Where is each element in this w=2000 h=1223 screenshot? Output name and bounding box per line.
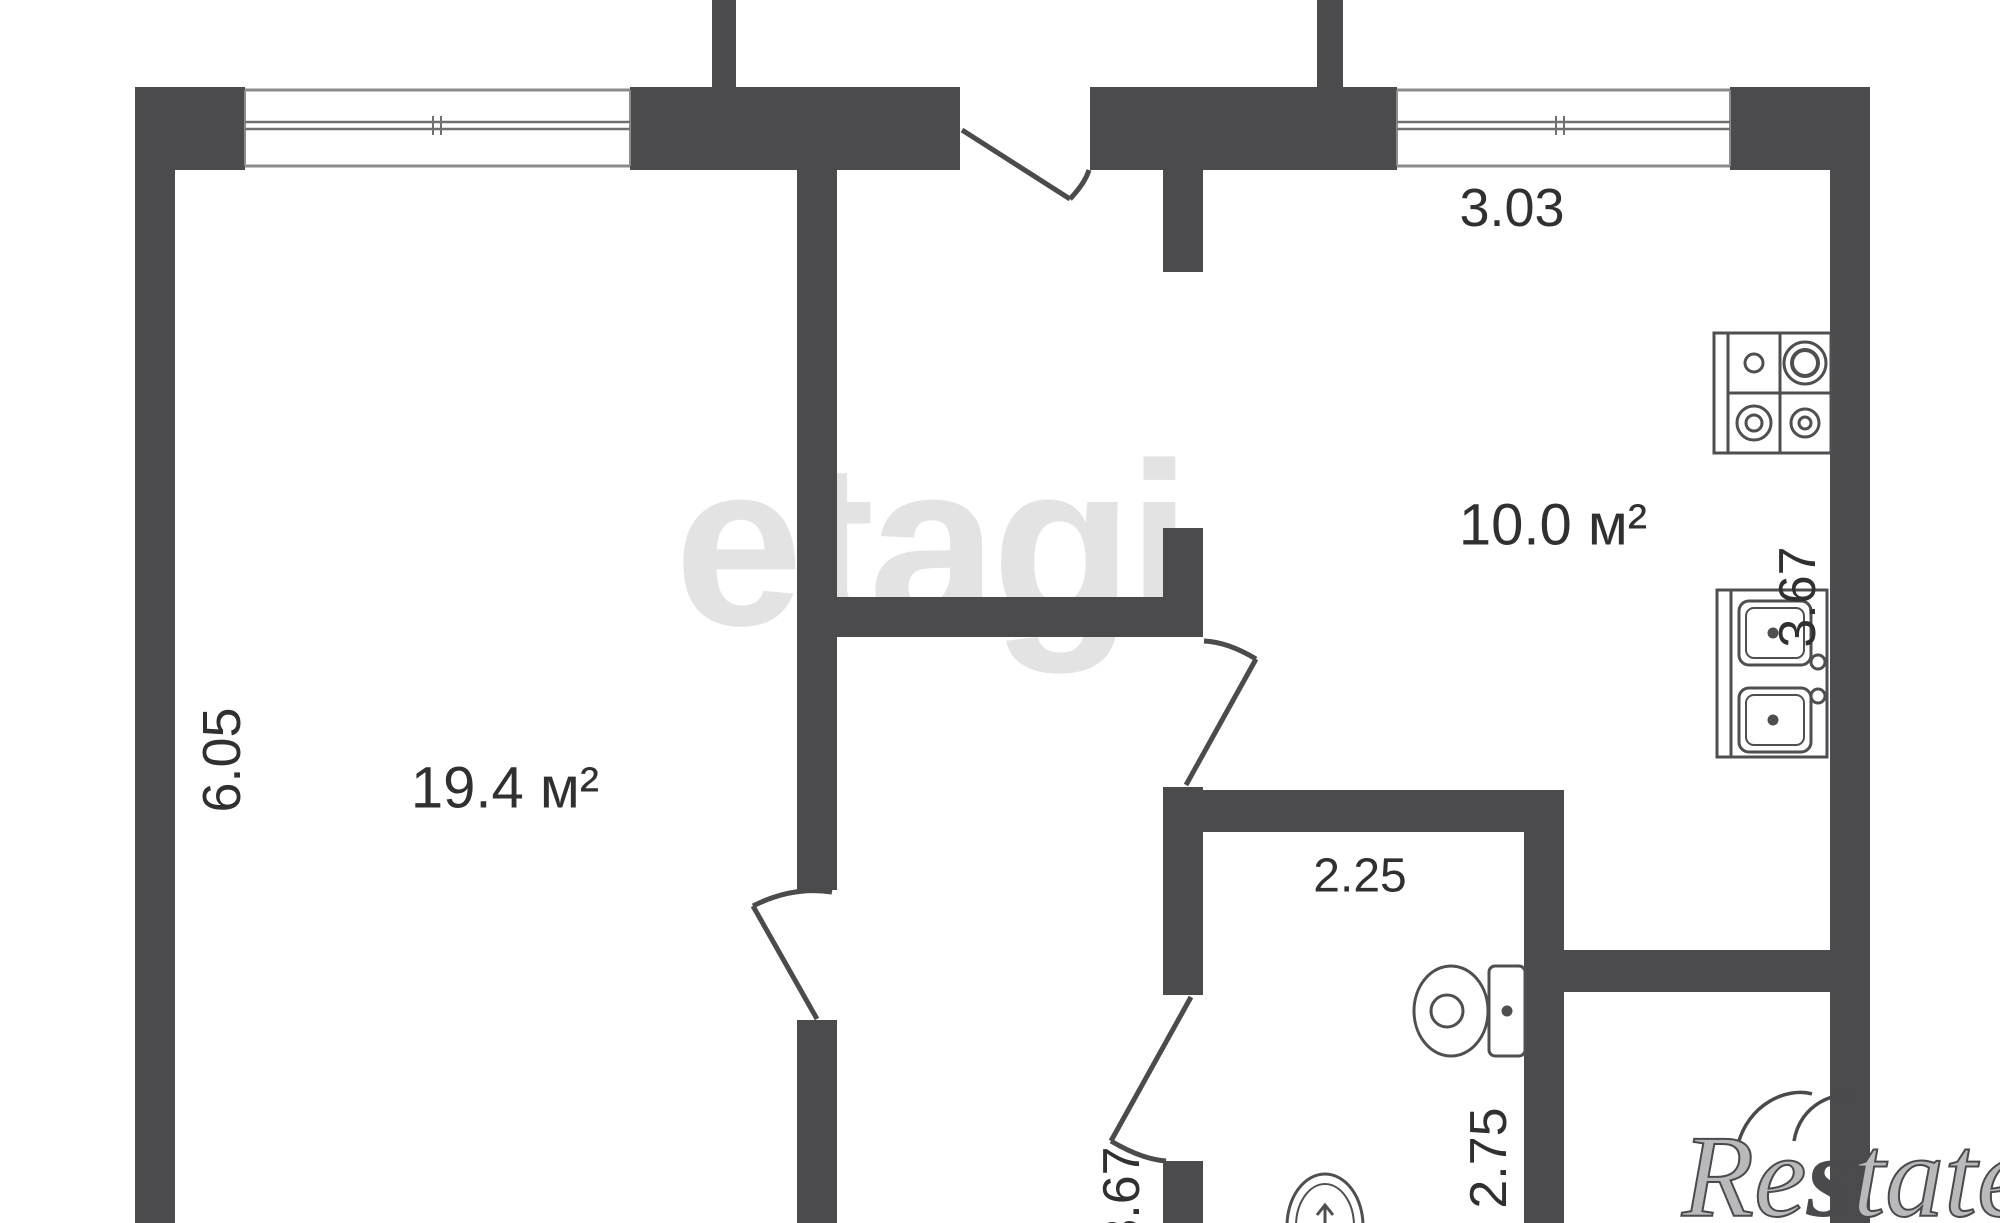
bathroom-side-dim: 2.75 xyxy=(1459,1107,1519,1208)
kitchen-top-dim: 3.03 xyxy=(1459,177,1564,239)
watermark-restate-part: Re xyxy=(1682,1111,1806,1223)
bathroom-top-dim: 2.25 xyxy=(1313,849,1406,904)
kitchen-side-dim: 3.67 xyxy=(1768,546,1828,647)
window-kitchen xyxy=(1397,90,1730,166)
entrance-door xyxy=(962,130,1089,199)
watermark-restate-part: s xyxy=(1806,1111,1852,1223)
toilet-icon xyxy=(1414,966,1525,1056)
corridor-side-dim: 3.67 xyxy=(1092,1146,1152,1223)
washbasin-icon xyxy=(1287,1174,1363,1223)
stove-icon xyxy=(1714,333,1831,453)
window-living xyxy=(245,90,630,166)
kitchen-door xyxy=(1186,641,1256,785)
kitchen-area-label: 10.0 м² xyxy=(1459,492,1647,559)
watermark-restate-part: tate xyxy=(1852,1111,2000,1223)
watermark-restate: Restate xyxy=(1682,1118,2000,1223)
floor-plan: etagi xyxy=(0,0,2000,1223)
bathroom-door xyxy=(1111,997,1191,1161)
living-side-dim: 6.05 xyxy=(191,707,253,812)
living-door xyxy=(753,891,832,1019)
living-area-label: 19.4 м² xyxy=(411,755,599,822)
plan-graphics xyxy=(0,0,2000,1223)
